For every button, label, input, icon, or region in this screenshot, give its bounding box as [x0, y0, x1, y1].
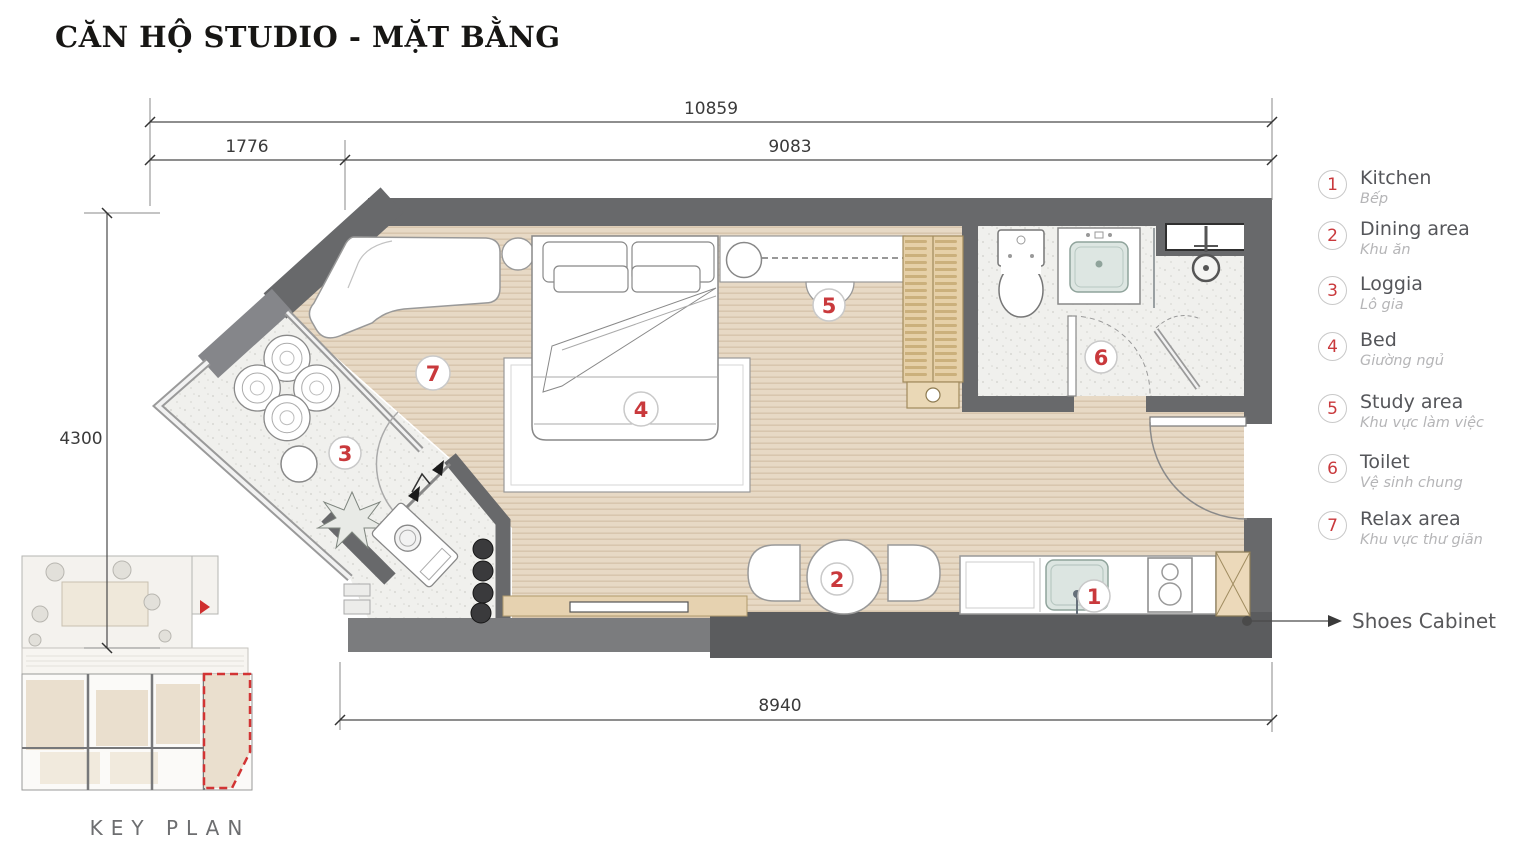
shoes-cabinet-label: Shoes Cabinet	[1352, 609, 1496, 633]
legend-item-study: 5 Study area Khu vực làm việc	[1318, 392, 1484, 431]
floor-plan-page: CĂN HỘ STUDIO - MẶT BẰNG	[0, 0, 1536, 864]
legend-number: 4	[1318, 332, 1347, 361]
legend-item-kitchen: 1 Kitchen Bếp	[1318, 168, 1431, 207]
loggia-side-table	[281, 446, 317, 482]
pillow-small	[632, 266, 700, 292]
marker-kitchen: 1	[1078, 580, 1110, 612]
marker-toilet: 6	[1085, 341, 1117, 373]
legend-label-vi: Vệ sinh chung	[1360, 475, 1463, 491]
svg-text:6: 6	[1094, 346, 1109, 370]
marker-loggia: 3	[329, 437, 361, 469]
key-plan	[22, 556, 252, 790]
legend-number: 7	[1318, 511, 1347, 540]
legend-item-loggia: 3 Loggia Lô gia	[1318, 274, 1423, 313]
dim-depth: 4300	[59, 429, 102, 449]
dim-overall-width: 10859	[684, 99, 738, 119]
legend-label-en: Toilet	[1360, 452, 1463, 474]
svg-text:5: 5	[822, 294, 837, 318]
wardrobe	[903, 236, 963, 408]
bathroom-bottom-wall-a	[962, 396, 1074, 412]
legend-number: 6	[1318, 454, 1347, 483]
dim-main-width: 9083	[768, 137, 811, 157]
key-plan-label: KEY PLAN	[60, 816, 280, 840]
legend-label-en: Kitchen	[1360, 168, 1431, 190]
bathroom-left-wall	[962, 226, 978, 412]
legend-number: 3	[1318, 276, 1347, 305]
tv	[570, 602, 688, 612]
toilet	[998, 230, 1044, 317]
svg-text:7: 7	[426, 362, 441, 386]
bed-area	[504, 236, 750, 492]
svg-text:2: 2	[830, 568, 845, 592]
svg-text:3: 3	[338, 442, 353, 466]
step-lower	[344, 600, 370, 614]
shoes-cabinet	[1216, 552, 1250, 616]
legend-number: 5	[1318, 394, 1347, 423]
desk-chair	[727, 243, 762, 278]
legend-label-vi: Khu vực thư giãn	[1360, 532, 1483, 548]
stove	[1148, 558, 1192, 612]
legend-number: 1	[1318, 170, 1347, 199]
bathroom-bottom-wall-b	[1146, 396, 1272, 412]
marker-bed: 4	[624, 392, 658, 426]
bottom-wall-right	[710, 612, 1272, 658]
legend-label-vi: Lô gia	[1360, 297, 1423, 313]
legend-label-vi: Khu ăn	[1360, 242, 1470, 258]
bottom-wall-left	[348, 618, 710, 652]
svg-text:1: 1	[1087, 585, 1102, 609]
vanity-sink	[1058, 228, 1140, 304]
top-wall	[368, 198, 1272, 226]
dim-bottom-width: 8940	[758, 696, 801, 716]
legend-label-en: Bed	[1360, 330, 1444, 352]
right-wall-top	[1244, 198, 1272, 424]
step-upper	[344, 584, 370, 596]
legend-item-dining: 2 Dining area Khu ăn	[1318, 219, 1470, 258]
tv-console	[503, 596, 747, 616]
floor-plan-drawing: 1 2 3 4 5 6 7	[0, 0, 1536, 864]
legend-item-bed: 4 Bed Giường ngủ	[1318, 330, 1444, 369]
legend-label-en: Relax area	[1360, 509, 1483, 531]
legend-number: 2	[1318, 221, 1347, 250]
legend-label-en: Dining area	[1360, 219, 1470, 241]
drawer-knob	[926, 388, 940, 402]
dim-left-bay: 1776	[225, 137, 268, 157]
dining-chair-left	[748, 545, 800, 601]
pillow-small	[554, 266, 628, 292]
legend-label-en: Study area	[1360, 392, 1484, 414]
legend-label-vi: Bếp	[1360, 191, 1431, 207]
legend-item-relax: 7 Relax area Khu vực thư giãn	[1318, 509, 1483, 548]
dining-chair-right	[888, 545, 940, 601]
legend-label-vi: Giường ngủ	[1360, 353, 1444, 369]
shoes-cabinet-callout: Shoes Cabinet	[1242, 609, 1496, 633]
marker-dining: 2	[821, 563, 853, 595]
marker-relax: 7	[416, 356, 450, 390]
sofa-side-table	[502, 238, 534, 270]
legend-label-en: Loggia	[1360, 274, 1423, 296]
legend-label-vi: Khu vực làm việc	[1360, 415, 1484, 431]
marker-study: 5	[813, 289, 845, 321]
svg-text:4: 4	[634, 398, 649, 422]
callout-arrow	[1328, 615, 1342, 627]
legend-item-toilet: 6 Toilet Vệ sinh chung	[1318, 452, 1463, 491]
